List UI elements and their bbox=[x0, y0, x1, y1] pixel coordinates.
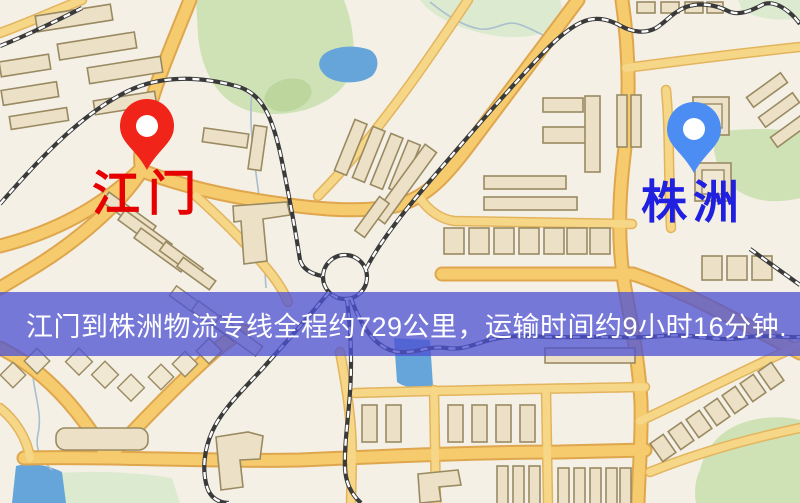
route-info-banner: 江门到株洲物流专线全程约729公里，运输时间约9小时16分钟. bbox=[0, 292, 800, 356]
map-canvas[interactable] bbox=[0, 0, 800, 503]
origin-pin[interactable] bbox=[120, 99, 174, 170]
origin-label: 江门 bbox=[92, 171, 204, 219]
map-screenshot: 江门 株洲 江门到株洲物流专线全程约729公里，运输时间约9小时16分钟. bbox=[0, 0, 800, 503]
route-info-text: 江门到株洲物流专线全程约729公里，运输时间约9小时16分钟. bbox=[0, 305, 787, 344]
destination-label: 株洲 bbox=[641, 180, 745, 226]
pin-hole bbox=[136, 115, 158, 137]
buildings-layer bbox=[0, 2, 800, 503]
pin-hole bbox=[683, 118, 705, 140]
